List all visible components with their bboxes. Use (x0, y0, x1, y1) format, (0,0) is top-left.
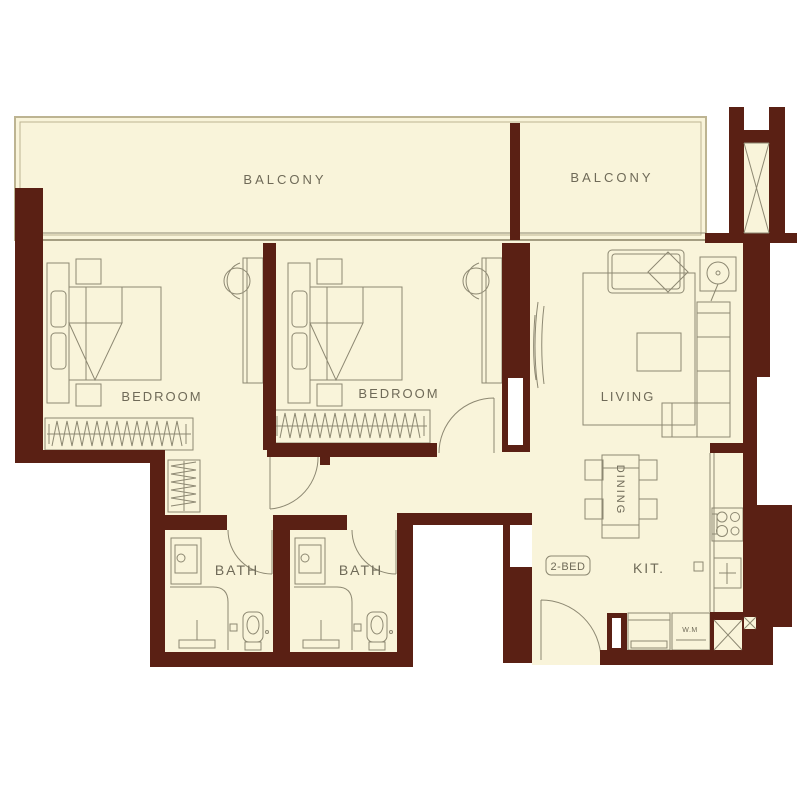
wall-segment (290, 515, 347, 530)
wall-segment (743, 377, 757, 650)
unit-badge-label: 2-BED (551, 561, 586, 573)
floorplan-drawing: BALCONY BALCONY BEDROOM (0, 0, 800, 800)
floorplan-page: BALCONY BALCONY BEDROOM (0, 0, 800, 800)
bath-left-label: BATH (215, 562, 259, 578)
shaft-wall (769, 107, 785, 233)
balcony-right-label: BALCONY (570, 170, 653, 185)
wall-segment (397, 513, 413, 667)
washing-machine-label: W.M (682, 627, 698, 634)
kitchen-label: KIT. (633, 560, 665, 576)
duct-slit (612, 618, 621, 648)
wall-segment (165, 515, 227, 530)
bedroom-left-label: BEDROOM (121, 389, 202, 404)
wall-segment (150, 450, 165, 667)
dining-label: DINING (614, 465, 626, 516)
wall-segment (757, 505, 792, 627)
wall-segment (273, 515, 290, 655)
door-jamb (320, 455, 330, 465)
wall-niche (508, 378, 523, 445)
wall-segment (710, 443, 743, 453)
wall-segment (705, 233, 797, 243)
hallway-floor (150, 453, 532, 515)
balcony-divider-wall (510, 123, 520, 240)
bedroom-center-label: BEDROOM (358, 386, 439, 401)
wall-segment (267, 443, 437, 457)
living-label: LIVING (601, 389, 656, 404)
wall-segment (743, 243, 770, 377)
shaft-wall (729, 107, 744, 233)
main-floor (43, 233, 757, 453)
balcony-left-label: BALCONY (243, 172, 326, 187)
wall-segment (15, 188, 43, 463)
bath-right-label: BATH (339, 562, 383, 578)
wall-segment (263, 243, 276, 450)
shaft-wall (744, 130, 769, 143)
wall-segment (15, 450, 165, 463)
wall-niche (510, 525, 532, 567)
